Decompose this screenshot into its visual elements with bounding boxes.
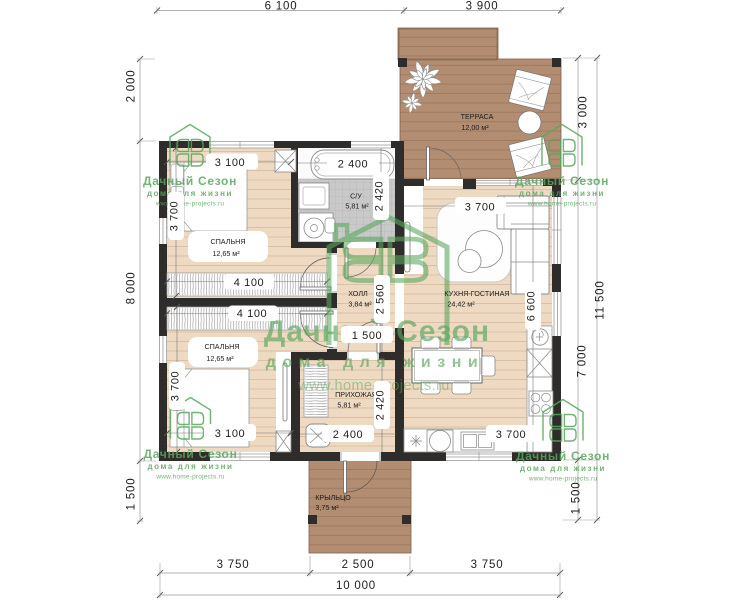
svg-text:Дачный Сезон: Дачный Сезон [515, 174, 609, 188]
svg-text:www.home-projects.ru: www.home-projects.ru [155, 201, 224, 208]
svg-text:2 420: 2 420 [375, 390, 387, 421]
svg-text:Дачный Сезон: Дачный Сезон [516, 449, 610, 463]
svg-text:дома для жизни: дома для жизни [266, 354, 484, 371]
svg-text:Дачный Сезон: Дачный Сезон [143, 447, 237, 461]
svg-text:дома для жизни: дома для жизни [147, 189, 233, 198]
svg-text:www.home-projects.ru: www.home-projects.ru [527, 201, 596, 208]
svg-text:5,81 м²: 5,81 м² [345, 202, 369, 211]
svg-text:СПАЛЬНЯ: СПАЛЬНЯ [210, 237, 245, 246]
svg-text:дома для жизни: дома для жизни [520, 464, 606, 473]
svg-text:3 100: 3 100 [215, 157, 246, 169]
svg-text:8 000: 8 000 [126, 272, 138, 305]
svg-text:2 400: 2 400 [338, 159, 369, 171]
svg-text:3 000: 3 000 [578, 96, 590, 129]
svg-text:24,42 м²: 24,42 м² [447, 300, 475, 309]
svg-text:1 500: 1 500 [126, 478, 138, 511]
svg-text:6 600: 6 600 [526, 291, 538, 322]
svg-text:www.home-projects.ru: www.home-projects.ru [155, 474, 224, 481]
svg-text:4 100: 4 100 [237, 308, 268, 320]
svg-text:2 400: 2 400 [333, 429, 364, 441]
svg-text:3 900: 3 900 [466, 1, 499, 13]
svg-text:4 100: 4 100 [234, 277, 265, 289]
svg-text:Дачный Сезон: Дачный Сезон [143, 174, 237, 188]
svg-text:1 500: 1 500 [352, 330, 383, 342]
svg-text:7 000: 7 000 [577, 345, 589, 378]
svg-text:2 560: 2 560 [375, 284, 387, 315]
svg-text:ХОЛЛ: ХОЛЛ [348, 289, 368, 298]
svg-text:6 100: 6 100 [265, 1, 298, 13]
svg-text:12,65 м²: 12,65 м² [212, 249, 240, 258]
svg-text:11 500: 11 500 [595, 280, 607, 319]
svg-text:3 700: 3 700 [170, 371, 182, 402]
svg-text:3 700: 3 700 [496, 429, 527, 441]
svg-text:3 700: 3 700 [465, 202, 496, 214]
svg-text:12,00 м²: 12,00 м² [461, 123, 489, 132]
svg-text:12,65 м²: 12,65 м² [206, 354, 234, 363]
svg-text:СПАЛЬНЯ: СПАЛЬНЯ [204, 342, 239, 351]
svg-text:3 700: 3 700 [169, 201, 181, 232]
svg-text:2 420: 2 420 [374, 181, 386, 212]
svg-text:2 000: 2 000 [126, 70, 138, 103]
svg-text:3 750: 3 750 [471, 559, 504, 571]
svg-text:www.home-projects.ru: www.home-projects.ru [528, 476, 597, 483]
svg-text:ТЕРРАСА: ТЕРРАСА [461, 112, 494, 121]
svg-text:3,84 м²: 3,84 м² [348, 300, 372, 309]
svg-text:3 750: 3 750 [217, 559, 250, 571]
svg-text:10 000: 10 000 [336, 580, 376, 592]
svg-text:дома для жизни: дома для жизни [147, 462, 233, 471]
svg-text:КУХНЯ-ГОСТИНАЯ: КУХНЯ-ГОСТИНАЯ [444, 289, 509, 298]
svg-text:дома для жизни: дома для жизни [519, 189, 605, 198]
svg-text:2 500: 2 500 [342, 559, 375, 571]
svg-text:С/У: С/У [350, 192, 362, 201]
svg-text:ПРИХОЖАЯ: ПРИХОЖАЯ [335, 390, 377, 399]
svg-text:3 100: 3 100 [215, 428, 246, 440]
svg-text:1 500: 1 500 [571, 482, 583, 515]
svg-text:КРЫЛЬЦО: КРЫЛЬЦО [315, 493, 351, 502]
svg-text:5,81 м²: 5,81 м² [337, 401, 361, 410]
svg-text:3,75 м²: 3,75 м² [315, 503, 339, 512]
